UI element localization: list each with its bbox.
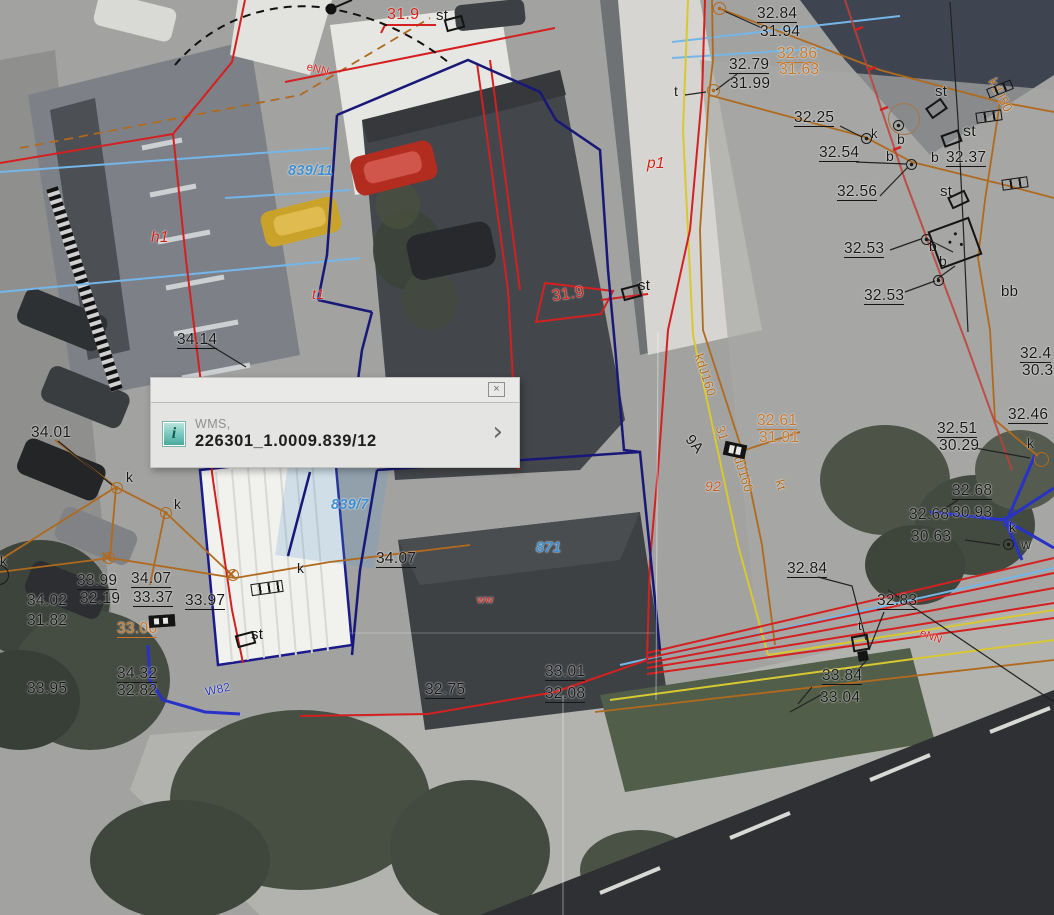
- elevation-label: 33.01: [545, 664, 585, 681]
- wms-info-popup[interactable]: × i WMS, 226301_1.0009.839/12 ›: [150, 377, 520, 468]
- parcel-number-label: 839/7: [331, 498, 369, 513]
- building-label: p1: [647, 156, 665, 172]
- elevation-label: 34.07: [131, 571, 171, 588]
- elevation-label: 30.3: [1022, 363, 1053, 379]
- point-type-label: b: [886, 149, 894, 164]
- elevation-label: 31.99: [730, 76, 770, 92]
- ringdot-symbol: [906, 159, 917, 170]
- elevation-label: 30.93: [952, 505, 992, 521]
- elevation-label: 32.84: [787, 561, 827, 578]
- elevation-label: 32.37: [946, 150, 986, 167]
- point-type-label: t: [858, 619, 862, 633]
- chain-symbol: [1001, 176, 1028, 191]
- elevation-label: 33.99: [77, 573, 117, 590]
- elevation-label: 32.54: [819, 145, 859, 162]
- elevation-label: 32.82: [117, 683, 157, 699]
- ringdot-symbol: [1001, 516, 1012, 527]
- chain-symbol: [975, 109, 1002, 124]
- ringdot-symbol: [933, 275, 944, 286]
- elevation-label: 32.53: [864, 288, 904, 305]
- ring-symbol: [1034, 452, 1049, 467]
- utility-label: eNN: [918, 628, 943, 647]
- point-type-label: k: [126, 470, 133, 485]
- close-icon: ×: [493, 383, 499, 395]
- close-button[interactable]: ×: [488, 382, 505, 397]
- ring-symbol: [888, 103, 920, 135]
- ring-symbol: [0, 565, 9, 585]
- rect-symbol: [940, 129, 962, 148]
- elevation-label: 34.02: [27, 593, 67, 609]
- point-type-label: k: [1027, 436, 1034, 451]
- building-label: 92: [705, 479, 721, 494]
- ringdot-symbol: [1003, 539, 1014, 550]
- elevation-label: 33.04: [820, 690, 860, 706]
- sq-symbol: [857, 650, 869, 662]
- point-type-label: bb: [1001, 284, 1018, 300]
- elevation-label: 32.79: [729, 57, 769, 74]
- point-type-label: k: [297, 561, 304, 576]
- popup-result-row[interactable]: i WMS, 226301_1.0009.839/12 ›: [151, 403, 519, 467]
- ringdot-symbol: [160, 507, 172, 519]
- elevation-label: 34.07: [376, 551, 416, 568]
- building-label: ww: [477, 595, 494, 607]
- elevation-label: 32.61: [757, 413, 797, 430]
- map-canvas[interactable]: 32.8431.9432.7931.9932.8631.6332.2532.54…: [0, 0, 1054, 915]
- point-type-label: t: [674, 84, 678, 99]
- utility-label: 31: [713, 424, 731, 443]
- parcel-number-label: 839/11: [288, 164, 333, 179]
- cab-symbol: [149, 614, 176, 628]
- elevation-label: 32.75: [425, 682, 465, 699]
- elevation-label: 34.14: [177, 332, 217, 349]
- ringdot-symbol: [861, 133, 872, 144]
- point-type-label: st: [963, 124, 976, 141]
- point-type-label: w: [1021, 537, 1031, 552]
- popup-header: ×: [151, 378, 519, 403]
- elevation-label: 33.37: [133, 590, 173, 607]
- parcel-number-label: 871: [536, 541, 561, 556]
- red-elevation-label: 31.9: [387, 7, 419, 24]
- utility-label: W82: [204, 681, 232, 699]
- address-label: 9A: [682, 432, 706, 457]
- utility-label: eNN: [305, 62, 330, 79]
- elevation-label: 32.68: [909, 507, 949, 523]
- point-type-label: k: [871, 127, 878, 141]
- ringdot-symbol: [111, 482, 123, 494]
- elevation-label: 32.46: [1008, 407, 1048, 424]
- ringdot-symbol: [713, 2, 726, 15]
- elevation-label: 32.19: [80, 591, 120, 607]
- elevation-label: 33.95: [27, 681, 67, 697]
- red-elevation-label: 31.9: [551, 284, 585, 305]
- elevation-label: 34.01: [31, 425, 71, 441]
- elevation-label: 31.82: [27, 613, 67, 629]
- cab-symbol: [723, 441, 747, 459]
- elevation-label: 33.97: [185, 593, 225, 610]
- ringdot-symbol: [707, 84, 720, 97]
- elevation-label: 31.91: [759, 430, 799, 446]
- elevation-label: 34.32: [117, 666, 157, 683]
- info-icon: i: [163, 422, 185, 446]
- point-type-label: b: [931, 150, 939, 165]
- elevation-label: 31.94: [760, 24, 800, 40]
- point-type-label: st: [935, 84, 947, 100]
- elevation-label: 32.84: [757, 6, 797, 23]
- elevation-label: 32.56: [837, 184, 877, 201]
- elevation-label: 32.68: [952, 483, 992, 500]
- utility-label: kdJ160: [692, 352, 718, 398]
- elevation-label: 30.63: [911, 529, 951, 545]
- point-type-label: k: [174, 497, 181, 512]
- elevation-label: 32.83: [877, 593, 917, 610]
- transformer-symbol: [927, 217, 982, 270]
- popup-text: WMS, 226301_1.0009.839/12: [195, 417, 489, 451]
- popup-feature-id: 226301_1.0009.839/12: [195, 432, 489, 451]
- popup-source-label: WMS,: [195, 417, 489, 431]
- elevation-label: 32.08: [545, 686, 585, 703]
- rect-symbol: [924, 97, 947, 119]
- elevation-label: 32.51: [937, 421, 977, 438]
- utility-label: kt: [773, 478, 789, 492]
- rect-symbol: [234, 630, 256, 647]
- elevation-label: 32.4: [1020, 346, 1051, 363]
- elevation-label: 30.29: [939, 438, 979, 454]
- building-label: t1: [312, 287, 324, 302]
- chevron-right-icon[interactable]: ›: [489, 422, 507, 446]
- pole-symbol: [103, 552, 115, 564]
- elevation-label: 32.25: [794, 110, 834, 127]
- elevation-label: 33.84: [822, 668, 862, 685]
- pole-symbol: [227, 569, 239, 581]
- building-label: h1: [151, 230, 169, 246]
- rect-symbol: [620, 283, 642, 300]
- elevation-label: 31.63: [779, 62, 819, 78]
- elevation-label: 32.53: [844, 241, 884, 258]
- chain-symbol: [250, 580, 283, 596]
